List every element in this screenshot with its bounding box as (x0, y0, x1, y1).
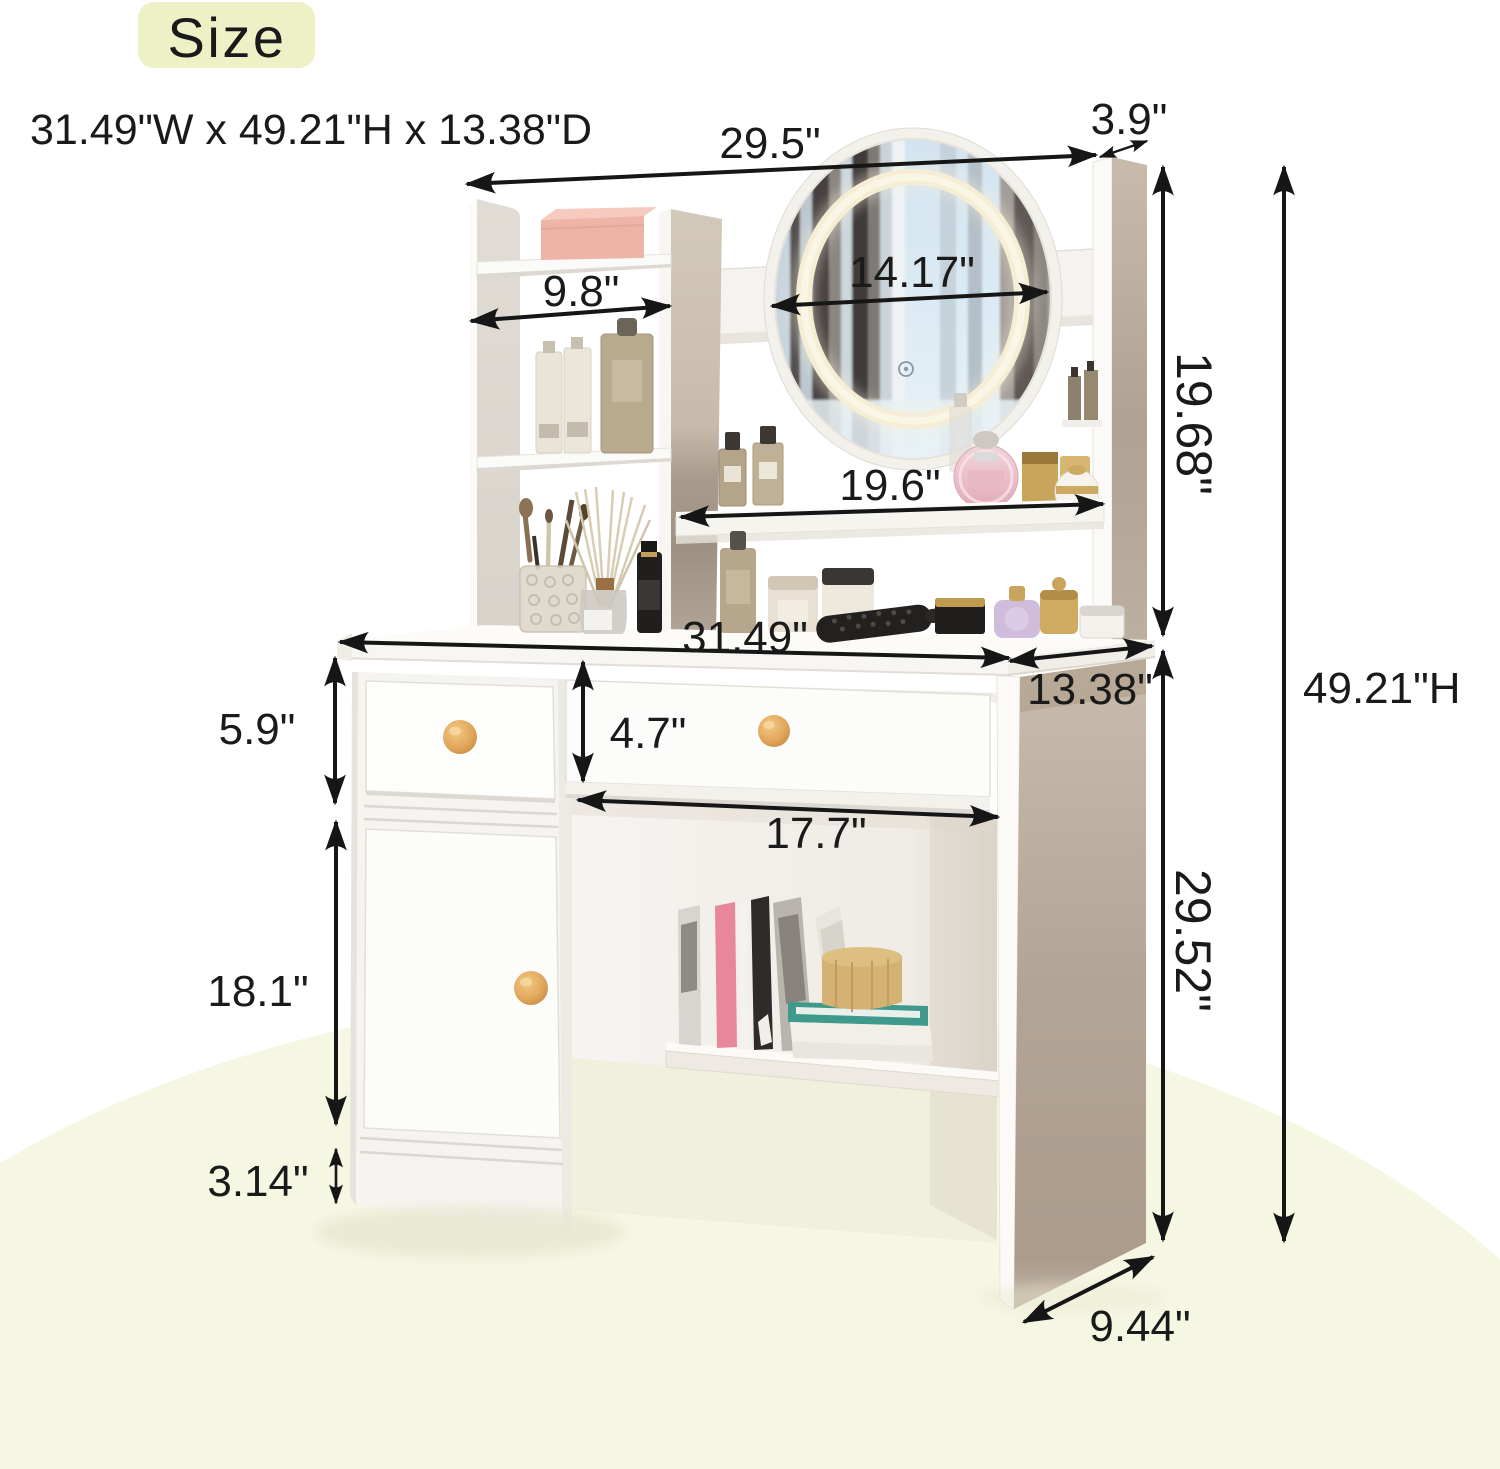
svg-text:31.49"W x 49.21"H x 13.38"D: 31.49"W x 49.21"H x 13.38"D (30, 106, 592, 154)
svg-text:9.8": 9.8" (543, 267, 620, 316)
svg-text:29.5": 29.5" (719, 119, 820, 168)
svg-text:49.21"H: 49.21"H (1303, 664, 1461, 713)
svg-text:3.14": 3.14" (207, 1157, 308, 1206)
svg-text:18.1": 18.1" (207, 967, 308, 1016)
svg-text:13.38": 13.38" (1027, 665, 1153, 714)
svg-text:29.52": 29.52" (1165, 869, 1221, 1012)
svg-text:4.7": 4.7" (610, 709, 687, 758)
svg-text:31.49": 31.49" (682, 613, 808, 662)
svg-text:Size: Size (168, 6, 287, 69)
svg-text:9.44": 9.44" (1089, 1302, 1190, 1351)
svg-text:14.17": 14.17" (849, 248, 975, 297)
svg-text:19.68": 19.68" (1166, 352, 1222, 495)
svg-text:3.9": 3.9" (1091, 95, 1168, 144)
svg-text:5.9": 5.9" (219, 705, 296, 754)
svg-text:19.6": 19.6" (839, 461, 940, 510)
svg-text:17.7": 17.7" (765, 809, 866, 858)
